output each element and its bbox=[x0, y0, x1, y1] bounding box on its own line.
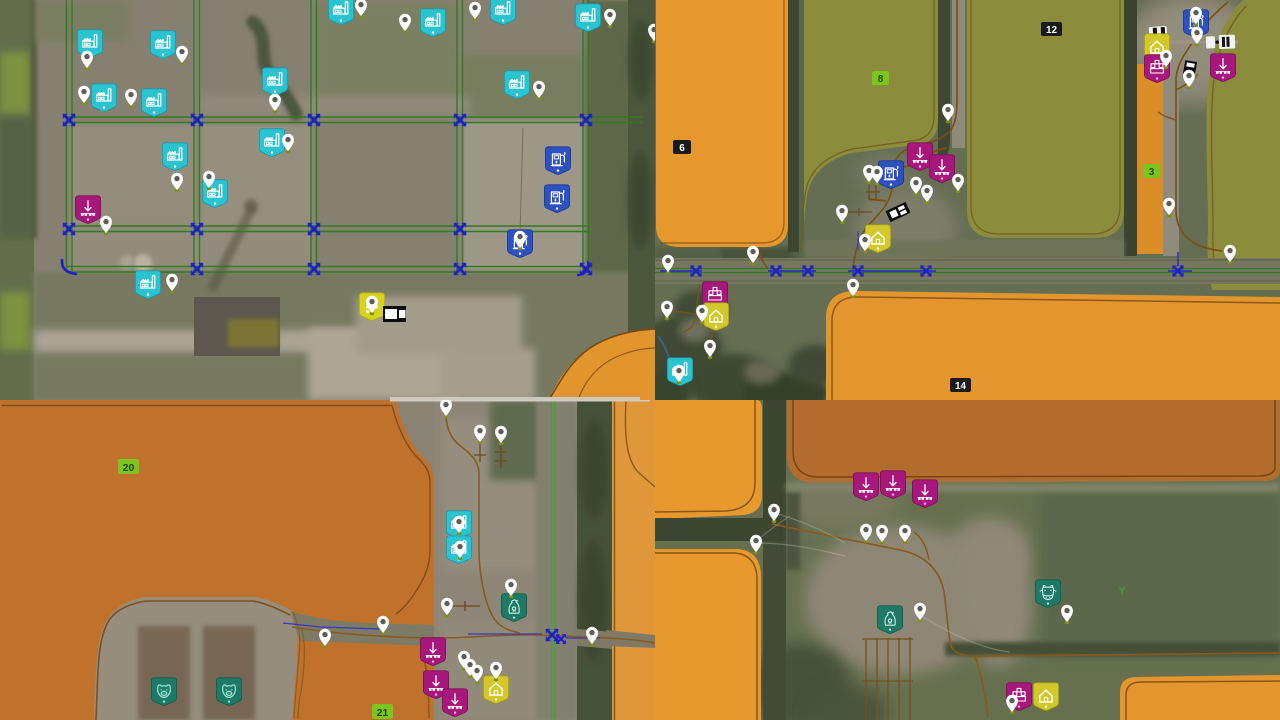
svg-text:21: 21 bbox=[377, 707, 389, 719]
svg-text:3: 3 bbox=[1149, 167, 1155, 178]
svg-text:6: 6 bbox=[679, 143, 685, 154]
svg-text:12: 12 bbox=[1046, 25, 1058, 36]
svg-text:20: 20 bbox=[123, 462, 135, 474]
svg-text:14: 14 bbox=[955, 381, 967, 392]
svg-text:8: 8 bbox=[878, 74, 884, 85]
